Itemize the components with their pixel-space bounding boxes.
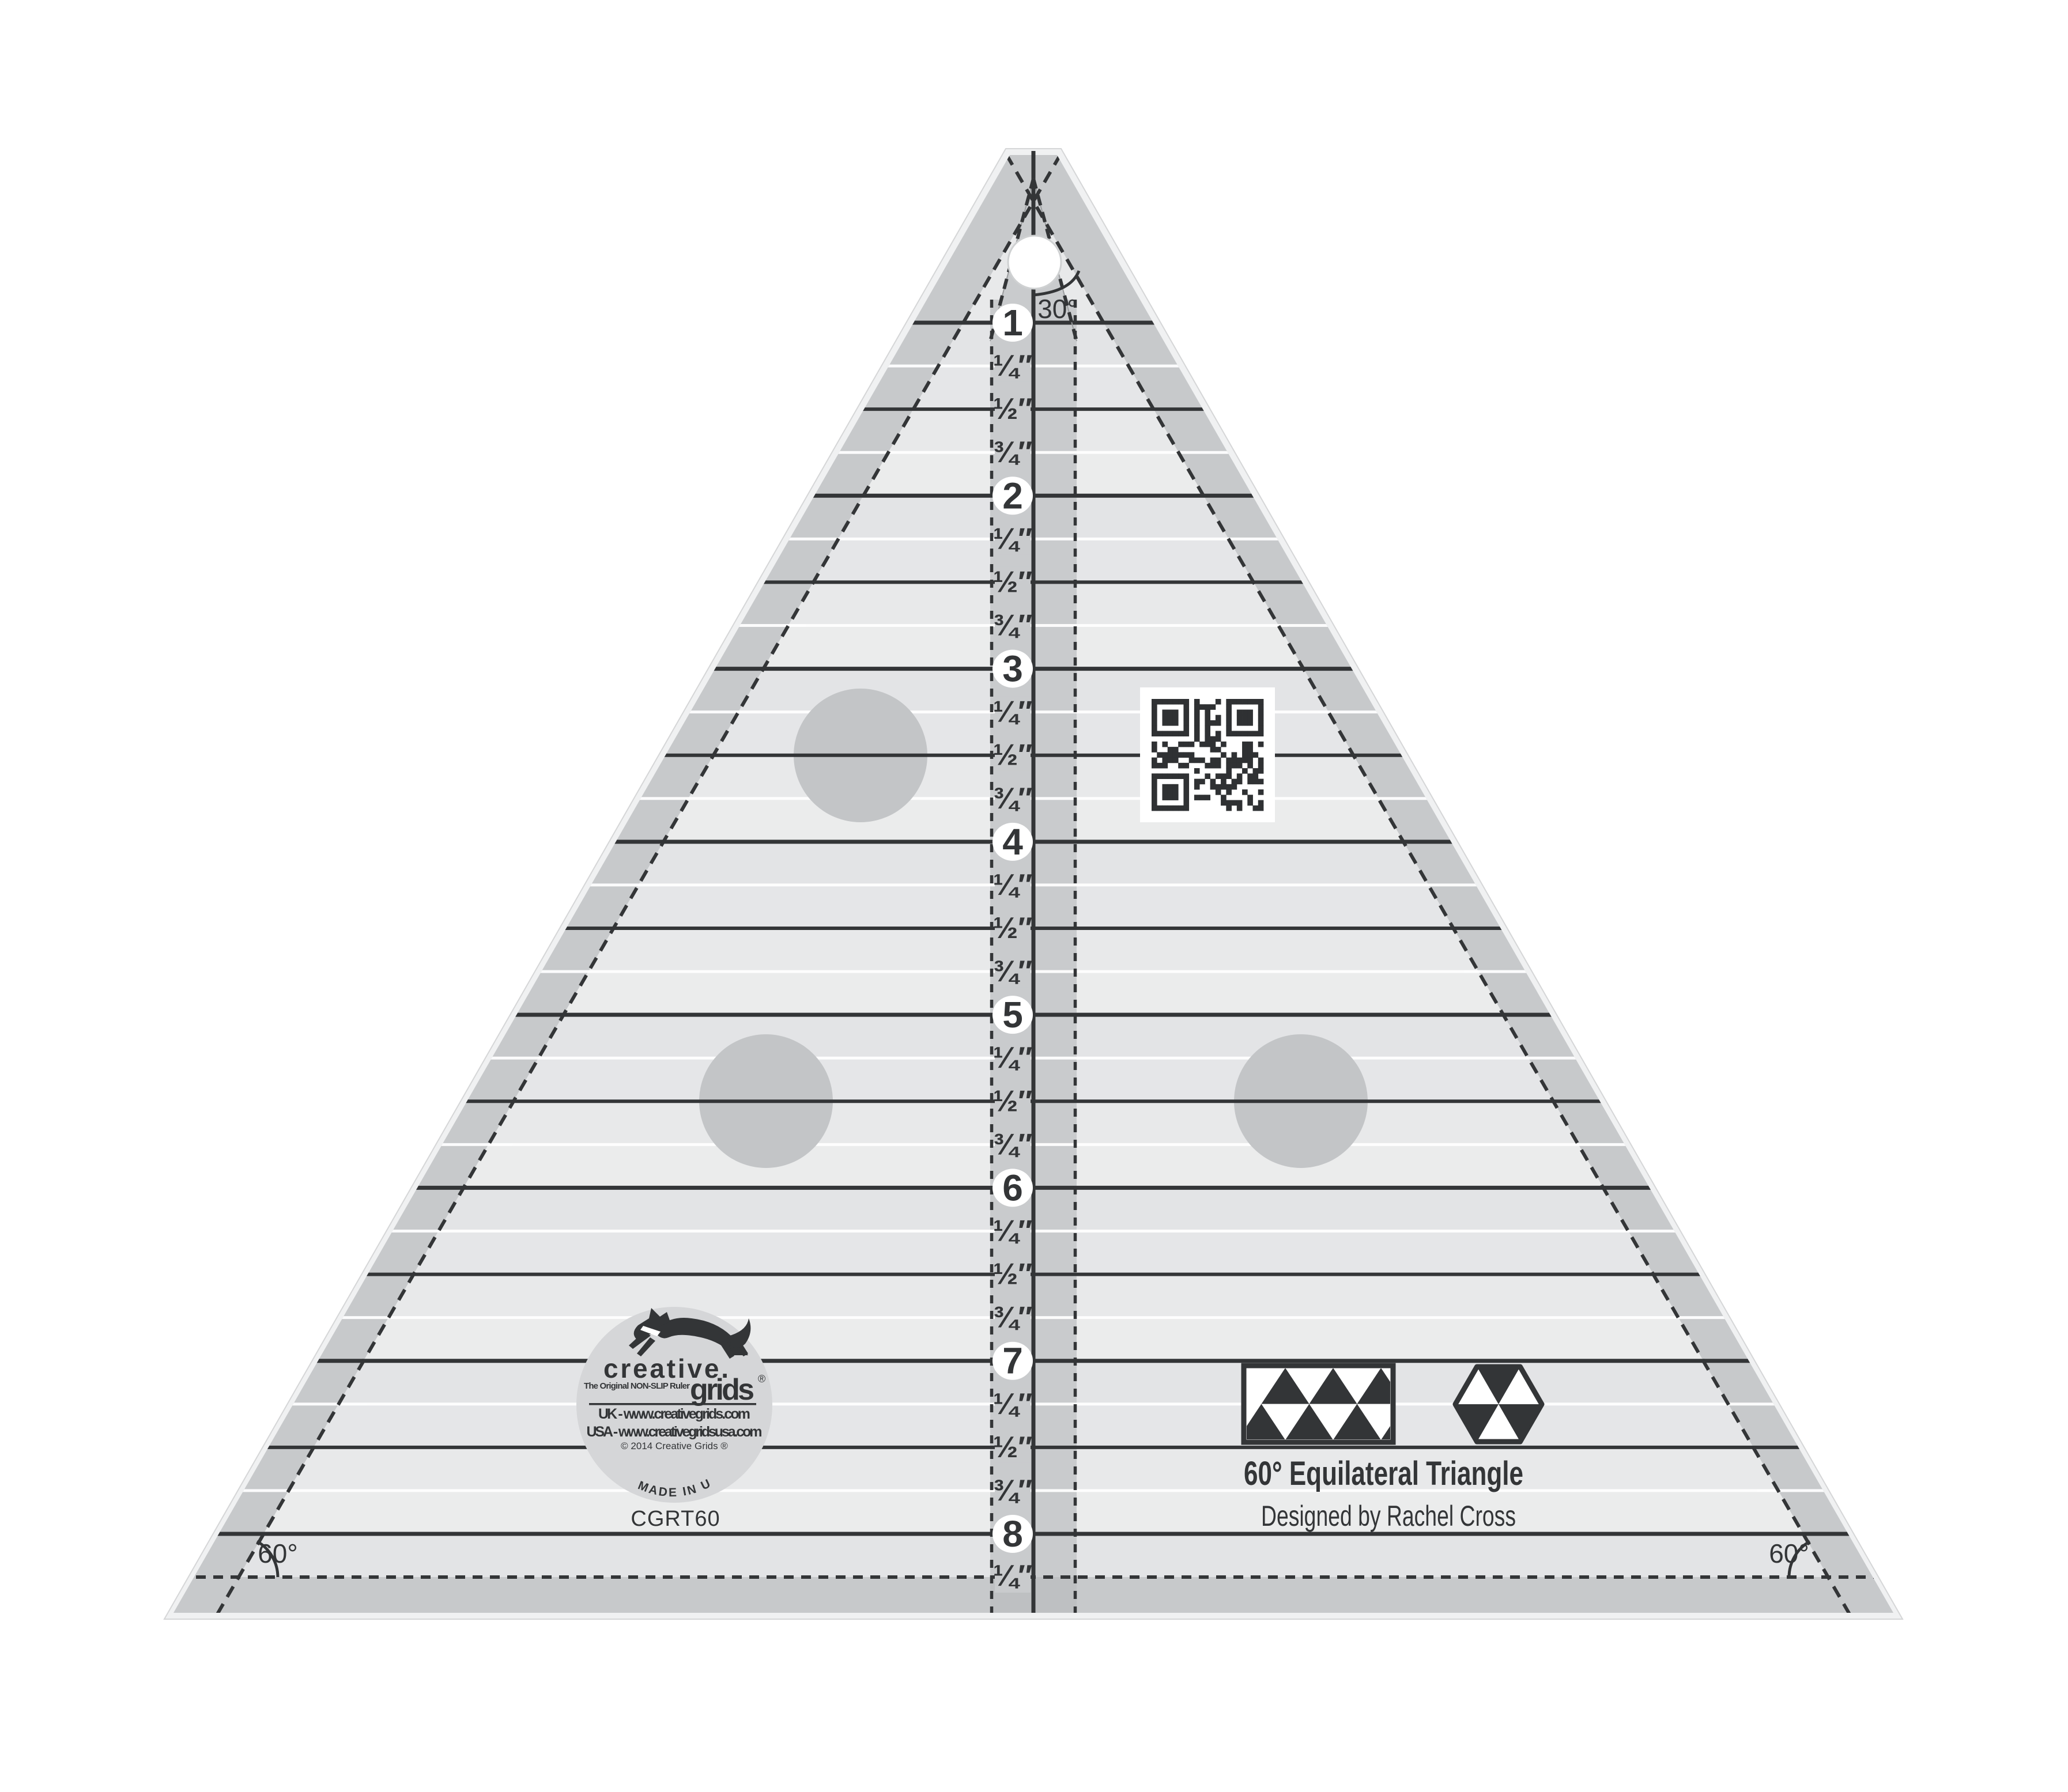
qr-module xyxy=(1237,773,1243,779)
qr-module xyxy=(1194,731,1200,736)
qr-module xyxy=(1199,779,1205,785)
qr-module xyxy=(1152,773,1157,779)
qr-module xyxy=(1173,758,1179,763)
qr-module xyxy=(1162,758,1168,763)
qr-module xyxy=(1194,758,1200,763)
qr-module xyxy=(1232,699,1237,705)
qr-module xyxy=(1194,795,1200,800)
qr-module xyxy=(1183,731,1189,736)
qr-module xyxy=(1173,773,1179,779)
fraction-label: ¼″ xyxy=(993,695,1032,729)
qr-module xyxy=(1173,747,1179,753)
qr-module xyxy=(1168,709,1173,715)
qr-module xyxy=(1183,773,1189,779)
qr-module xyxy=(1205,763,1210,769)
qr-module xyxy=(1178,773,1184,779)
qr-module xyxy=(1247,763,1253,769)
qr-module xyxy=(1210,758,1216,763)
qr-module xyxy=(1232,758,1237,763)
qr-module xyxy=(1216,699,1221,705)
qr-module xyxy=(1232,800,1237,806)
qr-module xyxy=(1242,752,1248,758)
qr-module xyxy=(1178,763,1184,769)
qr-module xyxy=(1168,806,1173,811)
qr-module xyxy=(1216,789,1221,795)
qr-module xyxy=(1237,731,1243,736)
qr-module xyxy=(1173,715,1179,721)
hanging-hole xyxy=(1008,236,1061,289)
qr-module xyxy=(1226,773,1232,779)
qr-module xyxy=(1173,709,1179,715)
qr-module xyxy=(1237,758,1243,763)
qr-module xyxy=(1221,779,1227,785)
qr-module xyxy=(1205,795,1210,800)
qr-module xyxy=(1226,758,1232,763)
fraction-label: ½″ xyxy=(993,1431,1032,1464)
qr-module xyxy=(1183,800,1189,806)
qr-module xyxy=(1237,779,1243,785)
qr-module xyxy=(1232,763,1237,769)
fraction-label: ¾″ xyxy=(993,782,1032,815)
qr-code-icon xyxy=(1140,687,1275,822)
inch-number-label: 8 xyxy=(1002,1513,1023,1555)
qr-module xyxy=(1226,699,1232,705)
qr-module xyxy=(1173,720,1179,726)
qr-module xyxy=(1173,784,1179,790)
qr-module xyxy=(1216,784,1221,790)
qr-module xyxy=(1152,795,1157,800)
qr-module xyxy=(1162,742,1168,747)
qr-module xyxy=(1242,731,1248,736)
logo-brand-bottom: grids xyxy=(690,1373,754,1407)
qr-module xyxy=(1216,720,1221,726)
qr-module xyxy=(1210,704,1216,710)
qr-module xyxy=(1199,795,1205,800)
qr-module xyxy=(1237,709,1243,715)
qr-module xyxy=(1168,752,1173,758)
qr-module xyxy=(1226,725,1232,731)
qr-module xyxy=(1194,709,1200,715)
qr-module xyxy=(1152,720,1157,726)
qr-module xyxy=(1232,731,1237,736)
qr-module xyxy=(1258,725,1264,731)
fraction-label: ¼″ xyxy=(993,1041,1032,1075)
fraction-label: ¼″ xyxy=(993,1388,1032,1421)
qr-module xyxy=(1237,806,1243,811)
qr-module xyxy=(1189,742,1195,747)
qr-module xyxy=(1194,720,1200,726)
qr-module xyxy=(1152,742,1157,747)
qr-module xyxy=(1152,704,1157,710)
qr-module xyxy=(1247,709,1253,715)
fraction-label: ½″ xyxy=(993,392,1032,426)
qr-module xyxy=(1237,763,1243,769)
qr-module xyxy=(1205,773,1210,779)
qr-module xyxy=(1210,784,1216,790)
qr-module xyxy=(1194,715,1200,721)
qr-module xyxy=(1242,742,1248,747)
product-title: 60° Equilateral Triangle xyxy=(1244,1455,1523,1492)
qr-module xyxy=(1216,715,1221,721)
fraction-label: ¾″ xyxy=(993,1474,1032,1507)
qr-module xyxy=(1253,806,1259,811)
qr-module xyxy=(1168,795,1173,800)
fraction-label: ¼″ xyxy=(993,522,1032,555)
qr-module xyxy=(1237,720,1243,726)
qr-module xyxy=(1253,768,1259,774)
qr-module xyxy=(1253,779,1259,785)
qr-module xyxy=(1210,747,1216,753)
qr-module xyxy=(1258,806,1264,811)
qr-module xyxy=(1199,742,1205,747)
fraction-label: ¾″ xyxy=(993,1128,1032,1161)
qr-module xyxy=(1247,752,1253,758)
qr-module xyxy=(1205,704,1210,710)
qr-module xyxy=(1168,715,1173,721)
qr-module xyxy=(1162,720,1168,726)
qr-module xyxy=(1162,795,1168,800)
qr-module xyxy=(1183,795,1189,800)
qr-module xyxy=(1247,800,1253,806)
qr-module xyxy=(1173,731,1179,736)
qr-module xyxy=(1183,752,1189,758)
fraction-label: ¾″ xyxy=(993,609,1032,642)
qr-module xyxy=(1247,715,1253,721)
qr-module xyxy=(1226,768,1232,774)
qr-module xyxy=(1258,789,1264,795)
qr-module xyxy=(1194,736,1200,742)
qr-module xyxy=(1226,709,1232,715)
qr-module xyxy=(1210,742,1216,747)
fraction-label: ½″ xyxy=(993,739,1032,772)
fraction-label: ½″ xyxy=(993,912,1032,945)
qr-module xyxy=(1237,699,1243,705)
qr-module xyxy=(1205,725,1210,731)
hexagon-icon xyxy=(1455,1367,1542,1442)
qr-module xyxy=(1247,731,1253,736)
qr-module xyxy=(1162,806,1168,811)
qr-module xyxy=(1162,763,1168,769)
qr-module xyxy=(1258,800,1264,806)
qr-module xyxy=(1162,752,1168,758)
qr-module xyxy=(1221,800,1227,806)
qr-module xyxy=(1168,784,1173,790)
qr-module xyxy=(1173,752,1179,758)
qr-module xyxy=(1205,731,1210,736)
qr-module xyxy=(1194,725,1200,731)
qr-module xyxy=(1183,715,1189,721)
qr-module xyxy=(1226,800,1232,806)
fraction-label: ½″ xyxy=(993,565,1032,599)
qr-module xyxy=(1194,779,1200,785)
model-number: CGRT60 xyxy=(631,1507,720,1531)
qr-module xyxy=(1183,763,1189,769)
qr-module xyxy=(1189,758,1195,763)
qr-module xyxy=(1178,742,1184,747)
qr-module xyxy=(1242,709,1248,715)
fraction-label: ¼″ xyxy=(993,349,1032,383)
qr-module xyxy=(1242,758,1248,763)
qr-module xyxy=(1152,789,1157,795)
qr-module xyxy=(1242,720,1248,726)
qr-module xyxy=(1253,731,1259,736)
fraction-label: ¼″ xyxy=(993,1215,1032,1248)
qr-module xyxy=(1242,789,1248,795)
logo-registered-mark: ® xyxy=(758,1373,765,1385)
qr-module xyxy=(1189,752,1195,758)
qr-module xyxy=(1226,789,1232,795)
qr-module xyxy=(1258,763,1264,769)
left-corner-angle-label: 60° xyxy=(258,1538,298,1568)
qr-module xyxy=(1226,806,1232,811)
qr-module xyxy=(1194,699,1200,705)
qr-module xyxy=(1183,720,1189,726)
qr-module xyxy=(1178,699,1184,705)
qr-module xyxy=(1152,725,1157,731)
qr-module xyxy=(1258,704,1264,710)
qr-module xyxy=(1258,699,1264,705)
qr-module xyxy=(1152,784,1157,790)
qr-module xyxy=(1162,709,1168,715)
qr-module xyxy=(1178,731,1184,736)
qr-module xyxy=(1232,784,1237,790)
qr-module xyxy=(1168,699,1173,705)
qr-module xyxy=(1258,715,1264,721)
qr-module xyxy=(1157,773,1163,779)
right-corner-angle-label: 60° xyxy=(1769,1538,1809,1568)
qr-module xyxy=(1152,763,1157,769)
qr-module xyxy=(1205,736,1210,742)
qr-module xyxy=(1253,773,1259,779)
logo-divider xyxy=(589,1403,756,1405)
qr-module xyxy=(1183,779,1189,785)
qr-module xyxy=(1258,720,1264,726)
qr-module xyxy=(1242,747,1248,753)
qr-module xyxy=(1183,806,1189,811)
qr-module xyxy=(1152,747,1157,753)
qr-module xyxy=(1157,763,1163,769)
qr-module xyxy=(1162,699,1168,705)
logo-url-usa: USA - www.creativegridsusa.com xyxy=(587,1424,763,1440)
qr-module xyxy=(1178,752,1184,758)
qr-module xyxy=(1247,779,1253,785)
qr-module xyxy=(1226,720,1232,726)
inch-number-label: 4 xyxy=(1002,821,1023,863)
qr-module xyxy=(1162,784,1168,790)
qr-module xyxy=(1210,736,1216,742)
fraction-label: ¾″ xyxy=(993,955,1032,988)
qr-module xyxy=(1210,720,1216,726)
qr-module xyxy=(1221,752,1227,758)
qr-module xyxy=(1162,773,1168,779)
qr-module xyxy=(1237,715,1243,721)
qr-module xyxy=(1221,742,1227,747)
qr-module xyxy=(1162,731,1168,736)
qr-module xyxy=(1157,699,1163,705)
qr-module xyxy=(1247,742,1253,747)
qr-module xyxy=(1258,758,1264,763)
qr-module xyxy=(1221,773,1227,779)
qr-module xyxy=(1152,709,1157,715)
qr-module xyxy=(1226,731,1232,736)
fraction-label: ¾″ xyxy=(993,436,1032,469)
qr-module xyxy=(1157,731,1163,736)
qr-module xyxy=(1168,747,1173,753)
qr-module xyxy=(1258,779,1264,785)
qr-module xyxy=(1205,742,1210,747)
qr-module xyxy=(1216,773,1221,779)
qr-module xyxy=(1232,779,1237,785)
fraction-label: ¾″ xyxy=(993,1301,1032,1334)
inch-number-label: 7 xyxy=(1002,1340,1023,1382)
qr-module xyxy=(1247,773,1253,779)
qr-module xyxy=(1183,709,1189,715)
qr-module xyxy=(1194,784,1200,790)
qr-module xyxy=(1242,699,1248,705)
qr-module xyxy=(1152,731,1157,736)
qr-module xyxy=(1216,747,1221,753)
qr-module xyxy=(1173,789,1179,795)
qr-module xyxy=(1152,758,1157,763)
qr-module xyxy=(1247,720,1253,726)
qr-module xyxy=(1242,715,1248,721)
inch-number-label: 1 xyxy=(1002,302,1023,343)
qr-module xyxy=(1168,731,1173,736)
logo-tagline: The Original NON-SLIP Ruler xyxy=(584,1381,690,1391)
qr-module xyxy=(1247,795,1253,800)
product-designer: Designed by Rachel Cross xyxy=(1261,1500,1516,1532)
qr-module xyxy=(1152,800,1157,806)
inch-number-label: 3 xyxy=(1002,648,1023,690)
qr-module xyxy=(1183,789,1189,795)
qr-module xyxy=(1258,742,1264,747)
qr-module xyxy=(1152,699,1157,705)
qr-module xyxy=(1253,752,1259,758)
qr-module xyxy=(1247,699,1253,705)
fraction-label: ½″ xyxy=(993,1084,1032,1118)
ruler-product-image: 30° 60° 60° 1¼″½″¾″2¼″½″¾″3¼″½″¾″4¼″½″¾″… xyxy=(0,0,2068,1792)
qr-module xyxy=(1162,789,1168,795)
qr-module xyxy=(1247,747,1253,753)
qr-module xyxy=(1226,704,1232,710)
qr-module xyxy=(1178,806,1184,811)
qr-module xyxy=(1205,709,1210,715)
qr-module xyxy=(1183,725,1189,731)
qr-module xyxy=(1216,758,1221,763)
qr-module xyxy=(1210,779,1216,785)
qr-module xyxy=(1221,795,1227,800)
qr-module xyxy=(1173,699,1179,705)
qr-module xyxy=(1205,720,1210,726)
qr-module xyxy=(1183,784,1189,790)
qr-module xyxy=(1199,704,1205,710)
qr-module xyxy=(1242,768,1248,774)
seam-fraction-label: ¼″ xyxy=(993,1559,1032,1593)
qr-module xyxy=(1194,704,1200,710)
qr-module xyxy=(1183,742,1189,747)
fraction-label: ¼″ xyxy=(993,868,1032,902)
inch-number-label: 5 xyxy=(1002,994,1023,1035)
qr-module xyxy=(1183,704,1189,710)
qr-module xyxy=(1258,709,1264,715)
qr-module xyxy=(1183,699,1189,705)
qr-module xyxy=(1173,806,1179,811)
qr-module xyxy=(1168,720,1173,726)
qr-module xyxy=(1168,773,1173,779)
qr-module xyxy=(1152,715,1157,721)
qr-module xyxy=(1247,758,1253,763)
qr-module xyxy=(1226,715,1232,721)
qr-module xyxy=(1152,779,1157,785)
qr-module xyxy=(1210,763,1216,769)
qr-module xyxy=(1168,789,1173,795)
qr-module xyxy=(1226,763,1232,769)
logo-copyright: © 2014 Creative Grids ® xyxy=(621,1441,728,1451)
apex-angle-label: 30° xyxy=(1037,294,1078,324)
qr-module xyxy=(1258,768,1264,774)
qr-module xyxy=(1216,763,1221,769)
qr-module xyxy=(1205,715,1210,721)
logo-url-uk: UK - www.creativegrids.com xyxy=(598,1406,750,1422)
inch-number-label: 2 xyxy=(1002,475,1023,516)
qr-module xyxy=(1237,800,1243,806)
fraction-label: ½″ xyxy=(993,1258,1032,1291)
qr-module xyxy=(1162,715,1168,721)
qr-module xyxy=(1152,806,1157,811)
qr-module xyxy=(1157,806,1163,811)
qr-module xyxy=(1216,736,1221,742)
qr-module xyxy=(1168,758,1173,763)
qr-module xyxy=(1258,731,1264,736)
qr-module xyxy=(1226,784,1232,790)
qr-module xyxy=(1173,795,1179,800)
qr-module xyxy=(1253,699,1259,705)
qr-module xyxy=(1221,784,1227,790)
qr-module xyxy=(1232,752,1237,758)
qr-module xyxy=(1216,731,1221,736)
qr-module xyxy=(1157,752,1163,758)
qr-module xyxy=(1199,758,1205,763)
qr-module xyxy=(1194,768,1200,774)
inch-number-label: 6 xyxy=(1002,1167,1023,1208)
